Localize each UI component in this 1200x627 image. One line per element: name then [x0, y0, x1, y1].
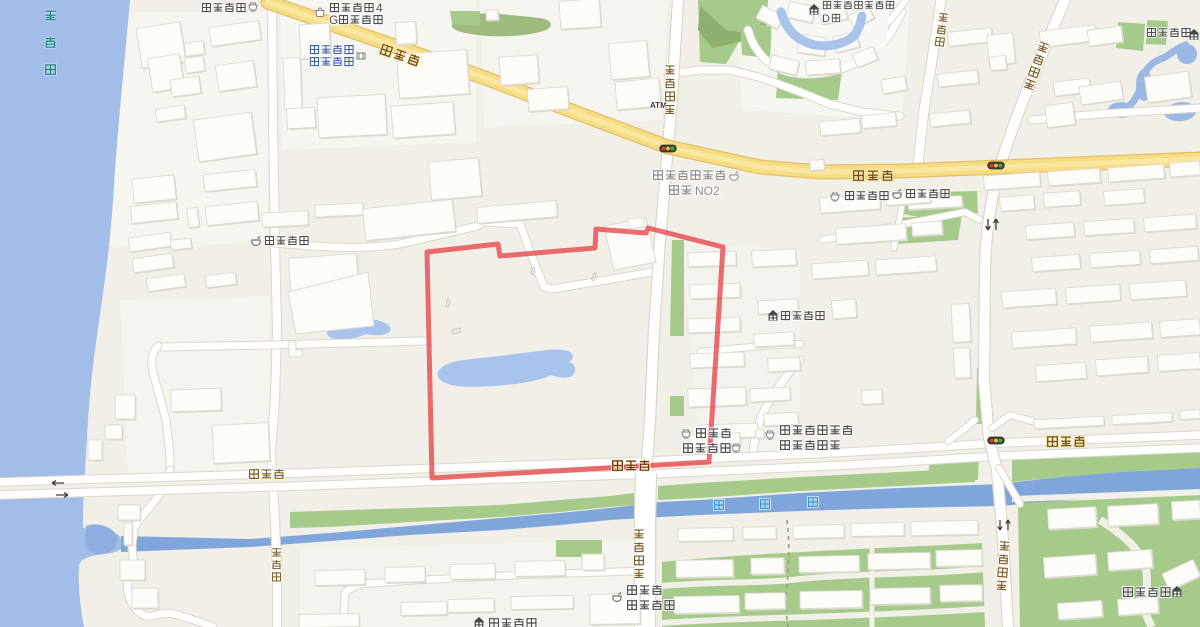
svg-text:D: D — [822, 13, 830, 25]
svg-text:G: G — [329, 13, 338, 27]
svg-text:NO2: NO2 — [695, 184, 720, 198]
svg-text:4: 4 — [376, 1, 383, 15]
